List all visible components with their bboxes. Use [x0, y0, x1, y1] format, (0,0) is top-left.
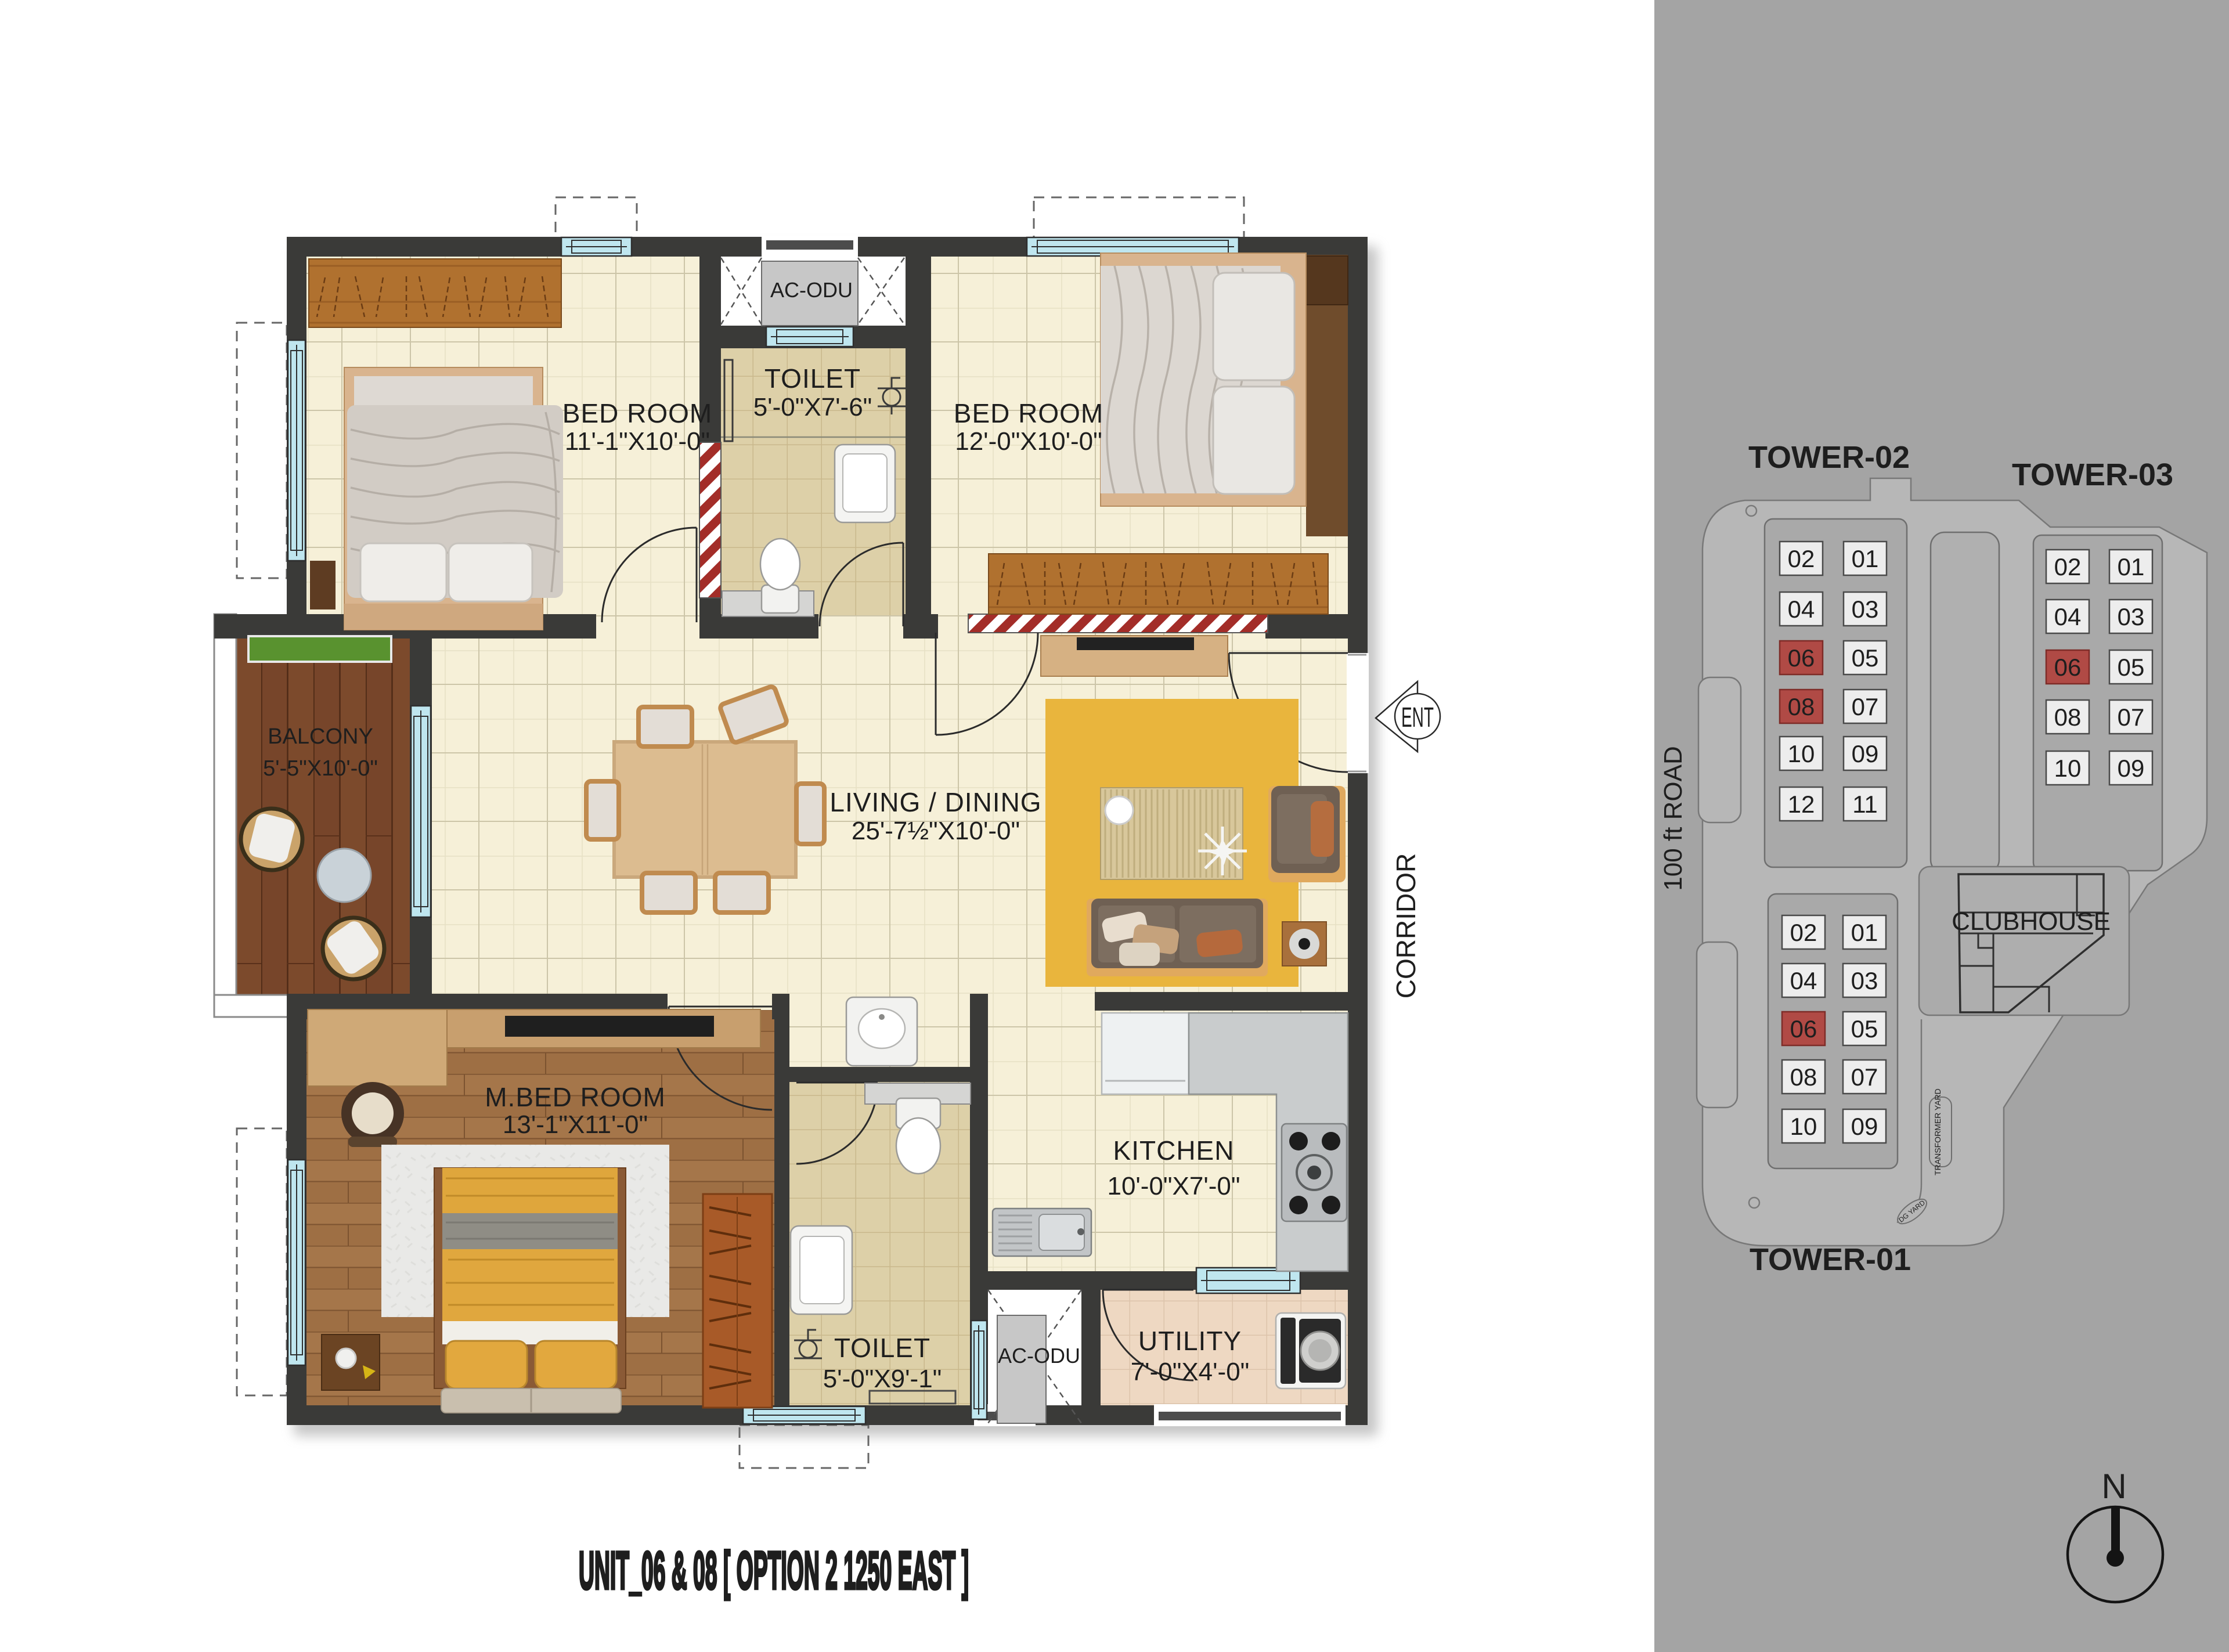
svg-text:02: 02 — [2054, 553, 2082, 580]
svg-text:AC-ODU: AC-ODU — [998, 1344, 1080, 1368]
svg-text:02: 02 — [1788, 545, 1815, 572]
svg-text:ENT: ENT — [1401, 702, 1434, 733]
svg-text:02: 02 — [1790, 919, 1817, 946]
svg-text:08: 08 — [1788, 693, 1815, 720]
svg-text:01: 01 — [2118, 553, 2145, 580]
svg-text:5'-5"X10'-0": 5'-5"X10'-0" — [263, 756, 378, 781]
svg-text:11: 11 — [1852, 791, 1878, 818]
svg-text:07: 07 — [1851, 1063, 1878, 1091]
svg-text:BALCONY: BALCONY — [268, 724, 373, 749]
svg-text:13'-1"X11'-0": 13'-1"X11'-0" — [503, 1110, 648, 1139]
svg-text:7'-0"X4'-0": 7'-0"X4'-0" — [1131, 1358, 1250, 1386]
svg-text:09: 09 — [2118, 755, 2145, 782]
svg-text:05: 05 — [1852, 644, 1879, 672]
svg-text:09: 09 — [1851, 1113, 1878, 1140]
svg-text:04: 04 — [1788, 596, 1815, 623]
svg-text:05: 05 — [2118, 654, 2145, 681]
svg-text:03: 03 — [1852, 596, 1879, 623]
svg-text:10: 10 — [2054, 755, 2082, 782]
svg-text:08: 08 — [1790, 1063, 1817, 1091]
svg-text:06: 06 — [1790, 1015, 1817, 1043]
svg-text:10: 10 — [1790, 1113, 1817, 1140]
svg-text:01: 01 — [1851, 919, 1878, 946]
svg-text:09: 09 — [1852, 740, 1879, 767]
svg-text:UNIT_06 & 08 [ OPTION 2 1250 E: UNIT_06 & 08 [ OPTION 2 1250 EAST ] — [579, 1541, 969, 1600]
svg-text:AC-ODU: AC-ODU — [770, 278, 853, 302]
svg-text:04: 04 — [1790, 967, 1817, 994]
svg-text:01: 01 — [1852, 545, 1879, 572]
svg-text:TOILET: TOILET — [834, 1333, 930, 1363]
svg-text:M.BED ROOM: M.BED ROOM — [485, 1082, 666, 1112]
svg-text:CLUBHOUSE: CLUBHOUSE — [1952, 907, 2111, 936]
svg-text:KITCHEN: KITCHEN — [1113, 1135, 1235, 1166]
svg-text:BED ROOM: BED ROOM — [562, 398, 712, 428]
svg-text:03: 03 — [2118, 603, 2145, 630]
svg-text:03: 03 — [1851, 967, 1878, 994]
svg-text:LIVING / DINING: LIVING / DINING — [829, 787, 1041, 817]
svg-text:CORRIDOR: CORRIDOR — [1391, 853, 1421, 998]
svg-text:06: 06 — [2054, 654, 2082, 681]
svg-text:BED ROOM: BED ROOM — [954, 398, 1103, 428]
svg-text:06: 06 — [1788, 644, 1815, 672]
svg-text:25'-7½"X10'-0": 25'-7½"X10'-0" — [852, 817, 1020, 845]
svg-text:100 ft ROAD: 100 ft ROAD — [1659, 746, 1687, 890]
svg-text:10: 10 — [1788, 740, 1815, 767]
svg-text:10'-0"X7'-0": 10'-0"X7'-0" — [1107, 1172, 1240, 1200]
svg-text:N: N — [2101, 1467, 2126, 1506]
svg-text:12'-0"X10'-0": 12'-0"X10'-0" — [955, 427, 1102, 456]
svg-text:07: 07 — [2118, 704, 2145, 731]
svg-text:TOILET: TOILET — [764, 363, 861, 394]
svg-text:11'-1"X10'-0": 11'-1"X10'-0" — [565, 427, 710, 456]
svg-text:UTILITY: UTILITY — [1138, 1326, 1242, 1356]
svg-text:05: 05 — [1851, 1015, 1878, 1043]
svg-text:12: 12 — [1788, 791, 1815, 818]
svg-text:TRANSFORMER YARD: TRANSFORMER YARD — [1933, 1088, 1942, 1175]
svg-text:5'-0"X7'-6": 5'-0"X7'-6" — [753, 393, 872, 421]
svg-text:TOWER-01: TOWER-01 — [1750, 1242, 1911, 1277]
svg-text:07: 07 — [1852, 693, 1879, 720]
svg-text:08: 08 — [2054, 704, 2082, 731]
svg-text:04: 04 — [2054, 603, 2082, 630]
svg-text:5'-0"X9'-1": 5'-0"X9'-1" — [823, 1365, 942, 1393]
svg-text:TOWER-03: TOWER-03 — [2012, 457, 2173, 492]
svg-text:TOWER-02: TOWER-02 — [1748, 440, 1910, 475]
